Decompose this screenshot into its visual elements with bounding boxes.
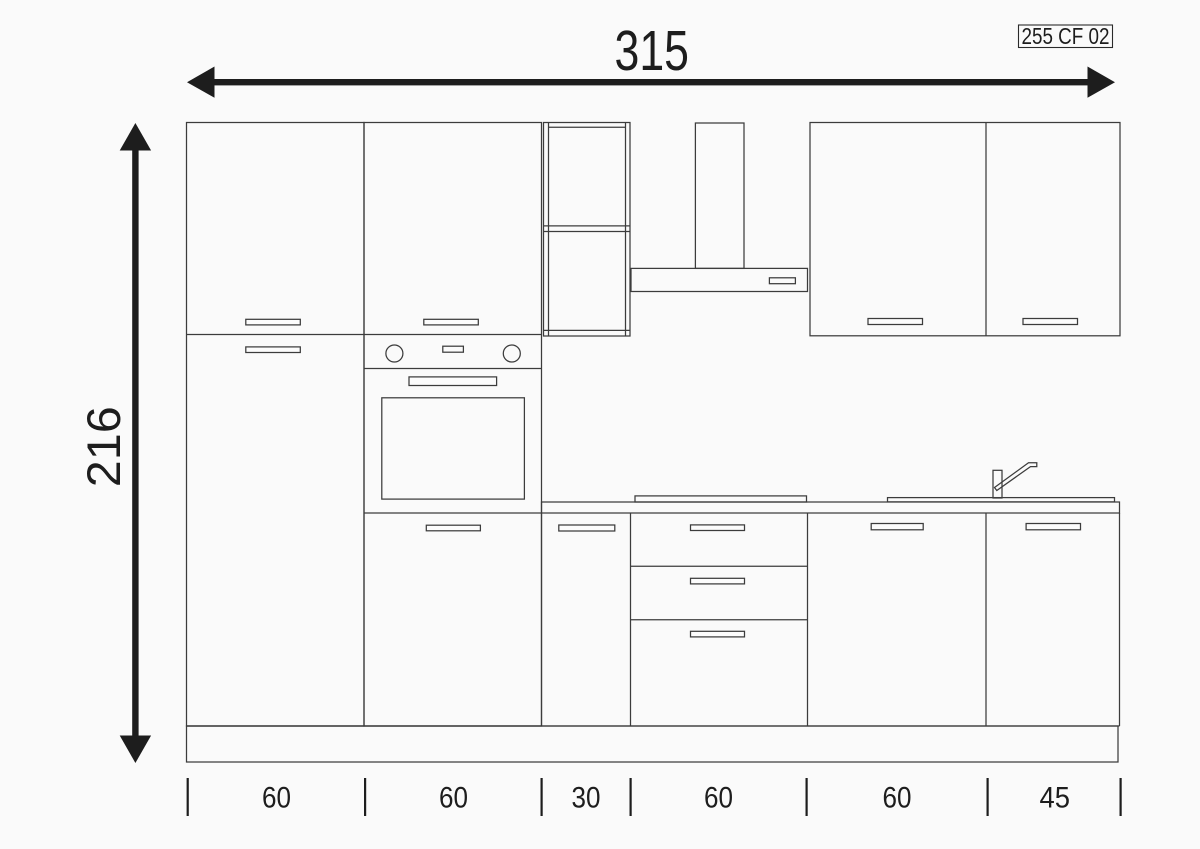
svg-text:216: 216: [77, 406, 130, 487]
svg-text:45: 45: [1040, 782, 1071, 815]
svg-text:255 CF 02: 255 CF 02: [1022, 23, 1110, 49]
svg-text:315: 315: [615, 19, 690, 82]
svg-text:60: 60: [262, 782, 291, 815]
svg-text:60: 60: [704, 782, 733, 815]
svg-text:60: 60: [883, 782, 912, 815]
svg-text:30: 30: [572, 782, 601, 815]
svg-text:60: 60: [439, 782, 468, 815]
